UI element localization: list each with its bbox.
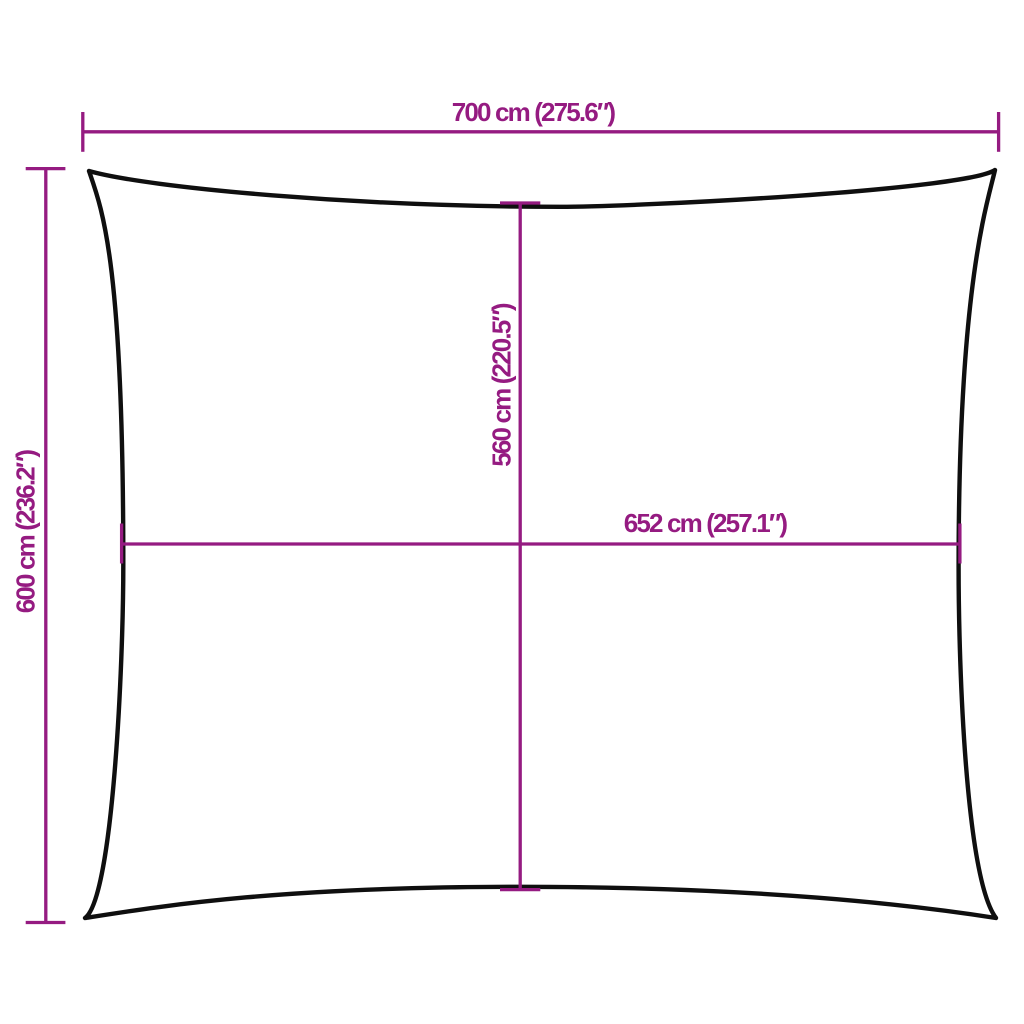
svg-text:652 cm (257.1″): 652 cm (257.1″) (624, 508, 788, 538)
svg-text:560 cm (220.5″): 560 cm (220.5″) (487, 303, 517, 467)
svg-text:700 cm (275.6″): 700 cm (275.6″) (452, 97, 616, 127)
svg-text:600 cm (236.2″): 600 cm (236.2″) (10, 450, 40, 614)
